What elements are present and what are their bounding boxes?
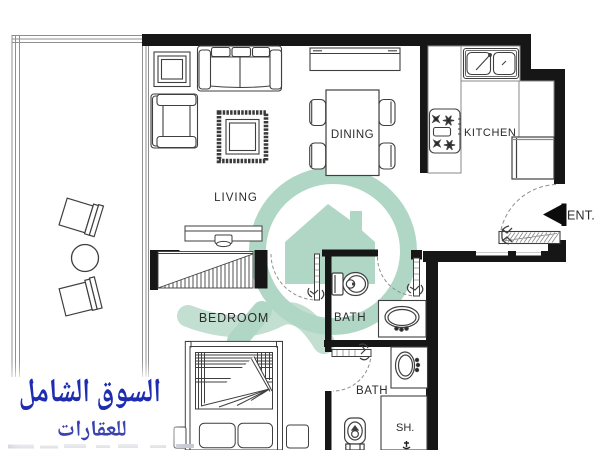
svg-text:KITCHEN: KITCHEN [464, 127, 516, 139]
svg-text:LIVING: LIVING [214, 192, 258, 204]
svg-text:DINING: DINING [331, 129, 374, 141]
svg-text:BEDROOM: BEDROOM [199, 311, 269, 325]
svg-text:BATH: BATH [356, 385, 388, 397]
svg-text:ENT.: ENT. [567, 209, 595, 223]
svg-text:BATH: BATH [334, 312, 366, 324]
svg-text:SH.: SH. [396, 422, 414, 434]
